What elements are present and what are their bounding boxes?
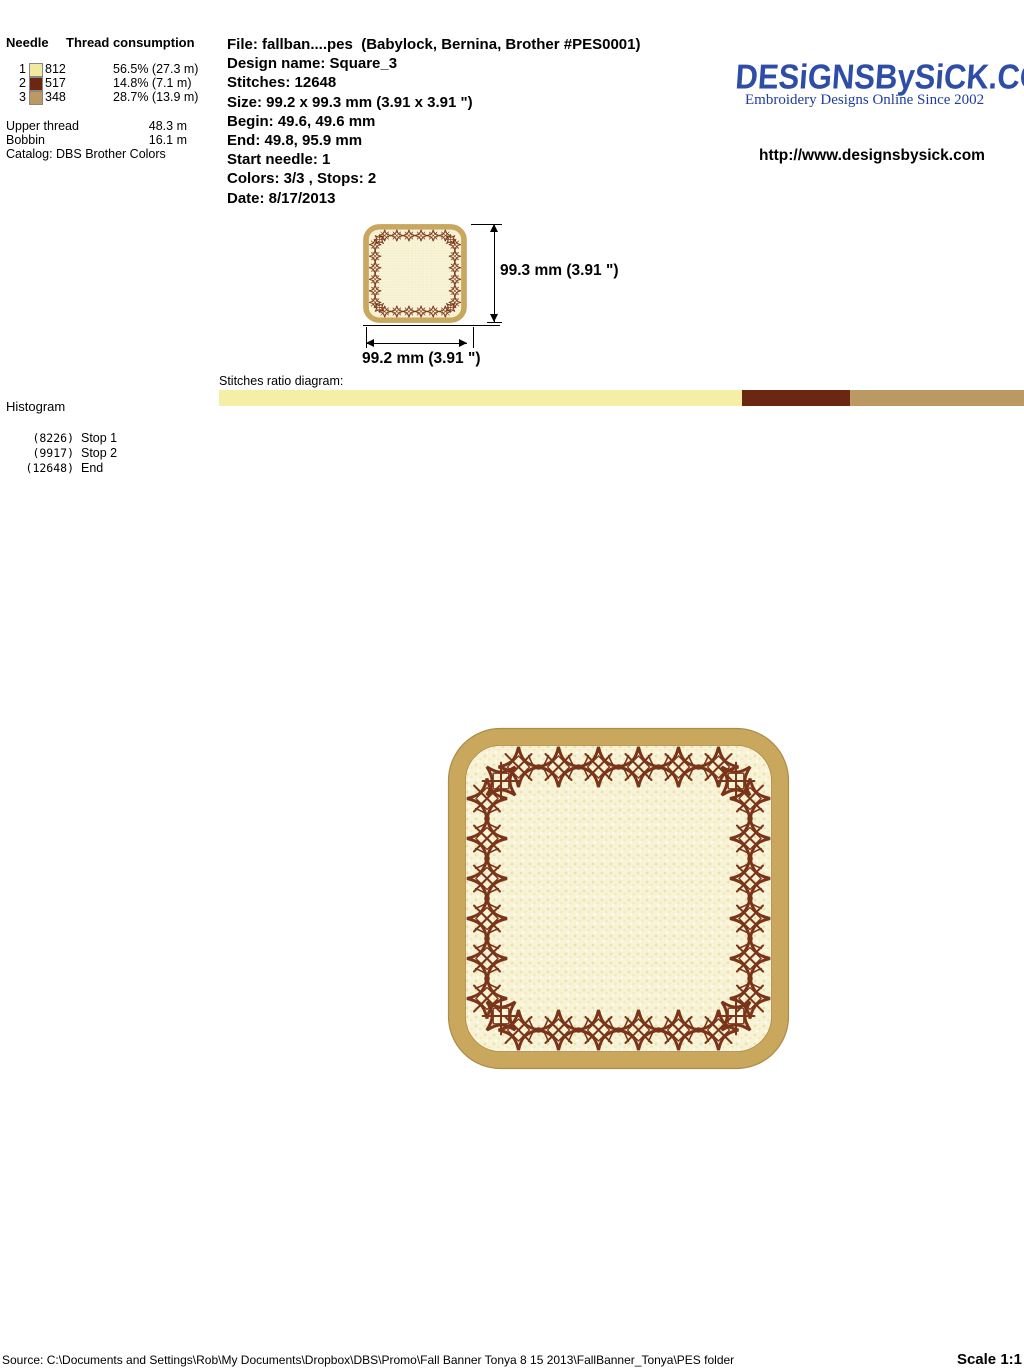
stop-label: Stop 1 [81, 431, 117, 445]
design-name-line: Design name: Square_3 [227, 54, 737, 73]
date-line: Date: 8/17/2013 [227, 189, 737, 208]
thread-code: 517 [45, 76, 66, 90]
dim-arrow-right-icon [459, 339, 467, 347]
thread-code: 348 [45, 90, 66, 104]
dim-arrow-left-icon [366, 339, 374, 347]
needle-number: 3 [16, 90, 26, 104]
begin-line: Begin: 49.6, 49.6 mm [227, 112, 737, 131]
stitch-count: (8226) [20, 431, 74, 445]
dim-line-horizontal [366, 343, 467, 344]
histogram-entry-stop-2: (9917)Stop 2 [20, 446, 220, 460]
design-thumbnail [363, 224, 467, 323]
file-name-line: File: fallban....pes (Babylock, Bernina,… [227, 35, 737, 54]
thread-consumption-value: 56.5% (27.3 m) [113, 62, 198, 76]
stop-label: End [81, 461, 103, 475]
dim-extension-right [473, 327, 474, 348]
thread-consumption-value: 14.8% (7.1 m) [113, 76, 192, 90]
source-path: Source: C:\Documents and Settings\Rob\My… [2, 1353, 734, 1367]
bobbin-value: 16.1 m [110, 133, 187, 147]
stitches-ratio-label: Stitches ratio diagram: [219, 374, 343, 388]
needle-number: 2 [16, 76, 26, 90]
stitch-count: (9917) [20, 446, 74, 460]
stitches-line: Stitches: 12648 [227, 73, 737, 92]
stitches-ratio-bar [219, 390, 1024, 406]
thread-color-swatch [29, 63, 43, 77]
height-dimension-label: 99.3 mm (3.91 ") [500, 262, 619, 280]
catalog-label: Catalog: DBS Brother Colors [6, 147, 166, 161]
end-line: End: 49.8, 95.9 mm [227, 131, 737, 150]
dim-line-vertical [494, 224, 495, 322]
dim-arrow-down-icon [490, 314, 498, 322]
thread-consumption-column-header: Thread consumption [66, 35, 195, 50]
needle-number: 1 [16, 62, 26, 76]
thread-color-swatch [29, 91, 43, 105]
histogram-entry-stop-1: (8226)Stop 1 [20, 431, 220, 445]
stitch-count: (12648) [20, 461, 74, 475]
dim-arrow-up-icon [490, 224, 498, 232]
stop-label: Stop 2 [81, 446, 117, 460]
embroidery-design-preview [447, 727, 790, 1070]
ratio-segment-thread-2 [742, 390, 850, 406]
width-dimension-label: 99.2 mm (3.91 ") [362, 350, 481, 368]
start-needle-line: Start needle: 1 [227, 150, 737, 169]
histogram-label: Histogram [6, 399, 65, 414]
size-line: Size: 99.2 x 99.3 mm (3.91 x 3.91 ") [227, 93, 737, 112]
ratio-segment-thread-3 [850, 390, 1024, 406]
histogram-entry-end: (12648)End [20, 461, 220, 475]
thread-code: 812 [45, 62, 66, 76]
website-url-link[interactable]: http://www.designsbysick.com [759, 147, 985, 165]
bobbin-label: Bobbin [6, 133, 45, 147]
thread-color-swatch [29, 77, 43, 91]
colors-stops-line: Colors: 3/3 , Stops: 2 [227, 169, 737, 188]
dim-tick-bottom [487, 322, 502, 323]
scale-label: Scale 1:1 [920, 1351, 1022, 1368]
ratio-segment-thread-1 [219, 390, 742, 406]
dim-extension-bottom [363, 325, 500, 326]
needle-column-header: Needle [6, 35, 49, 50]
upper-thread-label: Upper thread [6, 119, 79, 133]
thread-consumption-value: 28.7% (13.9 m) [113, 90, 198, 104]
upper-thread-value: 48.3 m [110, 119, 187, 133]
file-info-block: File: fallban....pes (Babylock, Bernina,… [227, 35, 737, 208]
logo-tagline: Embroidery Designs Online Since 2002 [745, 92, 984, 109]
